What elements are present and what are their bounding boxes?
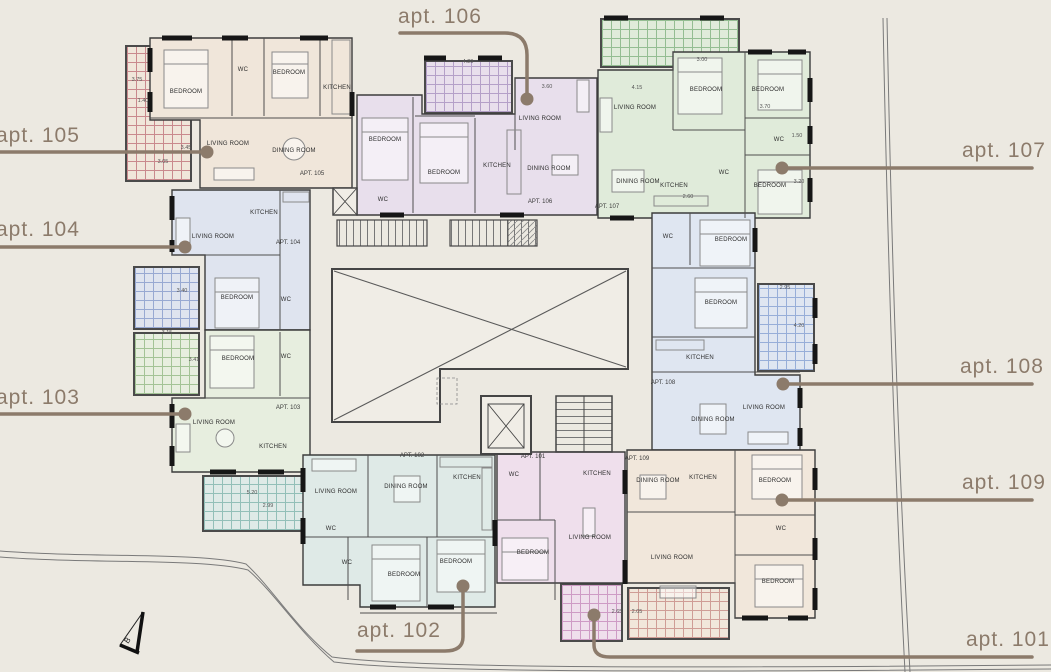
room-label: KITCHEN xyxy=(323,85,351,91)
bed xyxy=(502,538,548,580)
dimension: 2.99 xyxy=(263,503,274,509)
room-label: WC xyxy=(281,354,291,360)
sofa xyxy=(660,586,696,598)
room-label: WC xyxy=(378,197,388,203)
north-letter: B xyxy=(122,636,132,646)
room-label: BEDROOM xyxy=(759,478,791,484)
room-label: LIVING ROOM xyxy=(743,405,785,411)
room-label: BEDROOM xyxy=(170,89,202,95)
apt-tag: APT. 106 xyxy=(528,199,552,205)
room-label: DINING ROOM xyxy=(272,148,316,154)
apt-tag: APT. 105 xyxy=(300,171,324,177)
dimension: 3.40 xyxy=(177,288,188,294)
north-arrow: B xyxy=(120,612,143,653)
dimension: 1.40 xyxy=(138,98,149,104)
room-label: LIVING ROOM xyxy=(651,555,693,561)
callout-dot xyxy=(179,408,192,421)
callout-dot xyxy=(179,241,192,254)
stair-strip-hatch xyxy=(508,220,537,246)
apt-tag: APT. 101 xyxy=(521,454,545,460)
apt-tag: APT. 104 xyxy=(276,240,300,246)
callout-dot xyxy=(521,93,534,106)
dining-table xyxy=(552,155,578,175)
dimension: 3.45 xyxy=(181,145,192,151)
room-label: KITCHEN xyxy=(583,471,611,477)
room-label: KITCHEN xyxy=(686,355,714,361)
callout-apt-101: apt. 101 xyxy=(966,628,1050,652)
bed xyxy=(755,565,803,607)
dimension: 2.05 xyxy=(632,609,643,615)
room-label: LIVING ROOM xyxy=(315,489,357,495)
callout-dot xyxy=(776,494,789,507)
room-label: WC xyxy=(663,234,673,240)
room-label: KITCHEN xyxy=(453,475,481,481)
callout-line-apt-106 xyxy=(400,33,527,97)
room-label: DINING ROOM xyxy=(384,484,428,490)
dimension: 3.05 xyxy=(158,159,169,165)
dimension: 4.15 xyxy=(632,85,643,91)
room-label: KITCHEN xyxy=(689,475,717,481)
bed xyxy=(758,170,802,214)
room-label: WC xyxy=(774,137,784,143)
room-label: WC xyxy=(342,560,352,566)
bed xyxy=(758,60,802,110)
dimension: 4.20 xyxy=(463,59,474,65)
dimension: 3.70 xyxy=(760,104,771,110)
bed xyxy=(215,278,259,328)
room-label: LIVING ROOM xyxy=(193,420,235,426)
room-label: WC xyxy=(776,526,786,532)
callout-apt-109: apt. 109 xyxy=(962,471,1046,495)
room-label: BEDROOM xyxy=(388,572,420,578)
room-label: BEDROOM xyxy=(222,356,254,362)
dimension: 5.20 xyxy=(247,490,258,496)
callout-dot xyxy=(588,609,601,622)
apt-tag: APT. 108 xyxy=(651,380,675,386)
room-label: WC xyxy=(281,297,291,303)
bed xyxy=(362,118,408,180)
coffee-table xyxy=(216,429,234,447)
bed xyxy=(752,455,802,499)
dimension: 3.60 xyxy=(542,84,553,90)
callout-apt-105: apt. 105 xyxy=(0,124,80,148)
floor-plan: B BEDROOM WC BEDROOM KITCHEN LIVING ROOM… xyxy=(0,0,1051,672)
callout-dot xyxy=(201,146,214,159)
room-label: LIVING ROOM xyxy=(207,141,249,147)
callout-dot xyxy=(777,378,790,391)
dimension: 3.41 xyxy=(189,357,200,363)
sofa xyxy=(577,80,589,112)
sofa xyxy=(312,459,356,471)
room-label: BEDROOM xyxy=(754,183,786,189)
road-east-outer xyxy=(883,18,905,672)
callout-dot xyxy=(457,580,470,593)
stair-strip-west xyxy=(337,220,427,246)
dimension: 3.20 xyxy=(794,179,805,185)
sofa xyxy=(176,424,190,452)
dimension: 1.50 xyxy=(792,133,803,139)
sofa xyxy=(214,168,254,180)
bed xyxy=(164,50,208,108)
room-label: DINING ROOM xyxy=(636,478,680,484)
room-label: BEDROOM xyxy=(705,300,737,306)
apt-tag: APT. 109 xyxy=(625,456,649,462)
room-label: LIVING ROOM xyxy=(614,105,656,111)
room-label: WC xyxy=(719,170,729,176)
bed xyxy=(700,220,750,266)
room-label: DINING ROOM xyxy=(527,166,571,172)
room-label: BEDROOM xyxy=(690,87,722,93)
room-label: WC xyxy=(326,526,336,532)
apt-tag: APT. 103 xyxy=(276,405,300,411)
callout-apt-104: apt. 104 xyxy=(0,218,80,242)
callout-apt-108: apt. 108 xyxy=(960,355,1044,379)
callout-dot xyxy=(776,162,789,175)
plan-drawing: B xyxy=(0,0,1051,672)
room-label: KITCHEN xyxy=(483,163,511,169)
sofa xyxy=(748,432,788,444)
callout-apt-107: apt. 107 xyxy=(962,139,1046,163)
bed xyxy=(210,336,254,388)
room-label: KITCHEN xyxy=(259,444,287,450)
room-label: BEDROOM xyxy=(440,559,472,565)
room-label: BEDROOM xyxy=(221,295,253,301)
room-label: BEDROOM xyxy=(762,579,794,585)
room-label: LIVING ROOM xyxy=(192,234,234,240)
room-label: KITCHEN xyxy=(250,210,278,216)
sofa xyxy=(600,98,612,132)
dimension: 3.00 xyxy=(697,57,708,63)
room-label: LIVING ROOM xyxy=(569,535,611,541)
room-label: BEDROOM xyxy=(369,137,401,143)
apt-tag: APT. 102 xyxy=(400,453,424,459)
room-label: BEDROOM xyxy=(428,170,460,176)
callout-apt-106: apt. 106 xyxy=(398,5,482,29)
room-label: DINING ROOM xyxy=(616,179,660,185)
sofa xyxy=(583,508,595,536)
room-label: LIVING ROOM xyxy=(519,116,561,122)
room-label: BEDROOM xyxy=(752,87,784,93)
dimension: 3.75 xyxy=(132,77,143,83)
callout-apt-102: apt. 102 xyxy=(357,619,441,643)
road-east-inner xyxy=(887,18,910,672)
dimension: 2.95 xyxy=(780,285,791,291)
dimension: 2.65 xyxy=(612,609,623,615)
bed xyxy=(678,58,722,114)
room-label: WC xyxy=(238,67,248,73)
callout-apt-103: apt. 103 xyxy=(0,386,80,410)
room-label: BEDROOM xyxy=(273,70,305,76)
dimension: 3.15 xyxy=(162,330,173,336)
room-label: WC xyxy=(509,472,519,478)
room-label: KITCHEN xyxy=(660,183,688,189)
apt-tag: APT. 107 xyxy=(595,204,619,210)
dimension: 2.60 xyxy=(683,194,694,200)
room-label: BEDROOM xyxy=(517,550,549,556)
dimension: 4.20 xyxy=(794,323,805,329)
room-label: DINING ROOM xyxy=(691,417,735,423)
room-label: BEDROOM xyxy=(715,237,747,243)
